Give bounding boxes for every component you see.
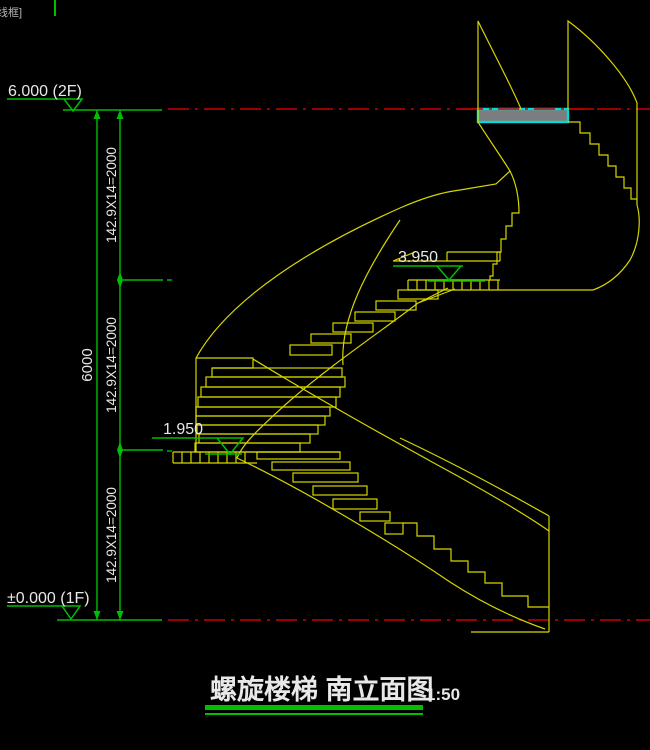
- bottom-flight-treads: [257, 452, 403, 534]
- upper-right-stringer-blade: [568, 21, 637, 205]
- dim-text-overall: 6000: [79, 348, 96, 381]
- upper-left-stringer-blade: [478, 21, 521, 122]
- title-underline-thick: [205, 705, 423, 710]
- title-underline-thin: [205, 713, 423, 715]
- elevation-label-2f: 6.000 (2F): [8, 83, 82, 100]
- drawing-title-block: 螺旋楼梯 南立面图 1:50: [205, 674, 460, 715]
- drawing-scale: 1:50: [426, 685, 460, 704]
- top-flight-steps: [568, 122, 637, 199]
- middle-flight-treads: [195, 290, 438, 452]
- elevation-label-3950: 3.950: [398, 249, 438, 266]
- cad-viewport[interactable]: 线框] 6.000 (2F) 3.950 1.950 ±0.000 (1F) 6…: [0, 0, 650, 750]
- bottom-flight-top-stringer: [253, 359, 549, 531]
- floor-slab-2f: [478, 109, 568, 122]
- left-spiral-stringer: [196, 171, 510, 452]
- viewport-style-label[interactable]: 线框]: [0, 5, 22, 19]
- elevation-label-1f: ±0.000 (1F): [7, 590, 90, 607]
- datum-lines: [168, 109, 650, 620]
- dim-text-segment-3: 142.9X14=2000: [104, 487, 119, 583]
- inner-winder-steps: [478, 122, 519, 280]
- dim-text-segment-1: 142.9X14=2000: [104, 147, 119, 243]
- right-spiral-bulge: [593, 205, 639, 290]
- elevation-label-1950: 1.950: [163, 421, 203, 438]
- level-marker-2f: [7, 99, 82, 111]
- drawing-title: 螺旋楼梯 南立面图: [210, 674, 434, 705]
- bottom-flight-handrail-line: [400, 438, 549, 516]
- spiral-staircase-outline: [173, 21, 639, 632]
- level-marker-3950: [393, 266, 485, 281]
- dim-text-segment-2: 142.9X14=2000: [104, 317, 119, 413]
- level-marker-1f: [7, 606, 80, 619]
- elevation-drawing: 线框] 6.000 (2F) 3.950 1.950 ±0.000 (1F) 6…: [0, 0, 650, 750]
